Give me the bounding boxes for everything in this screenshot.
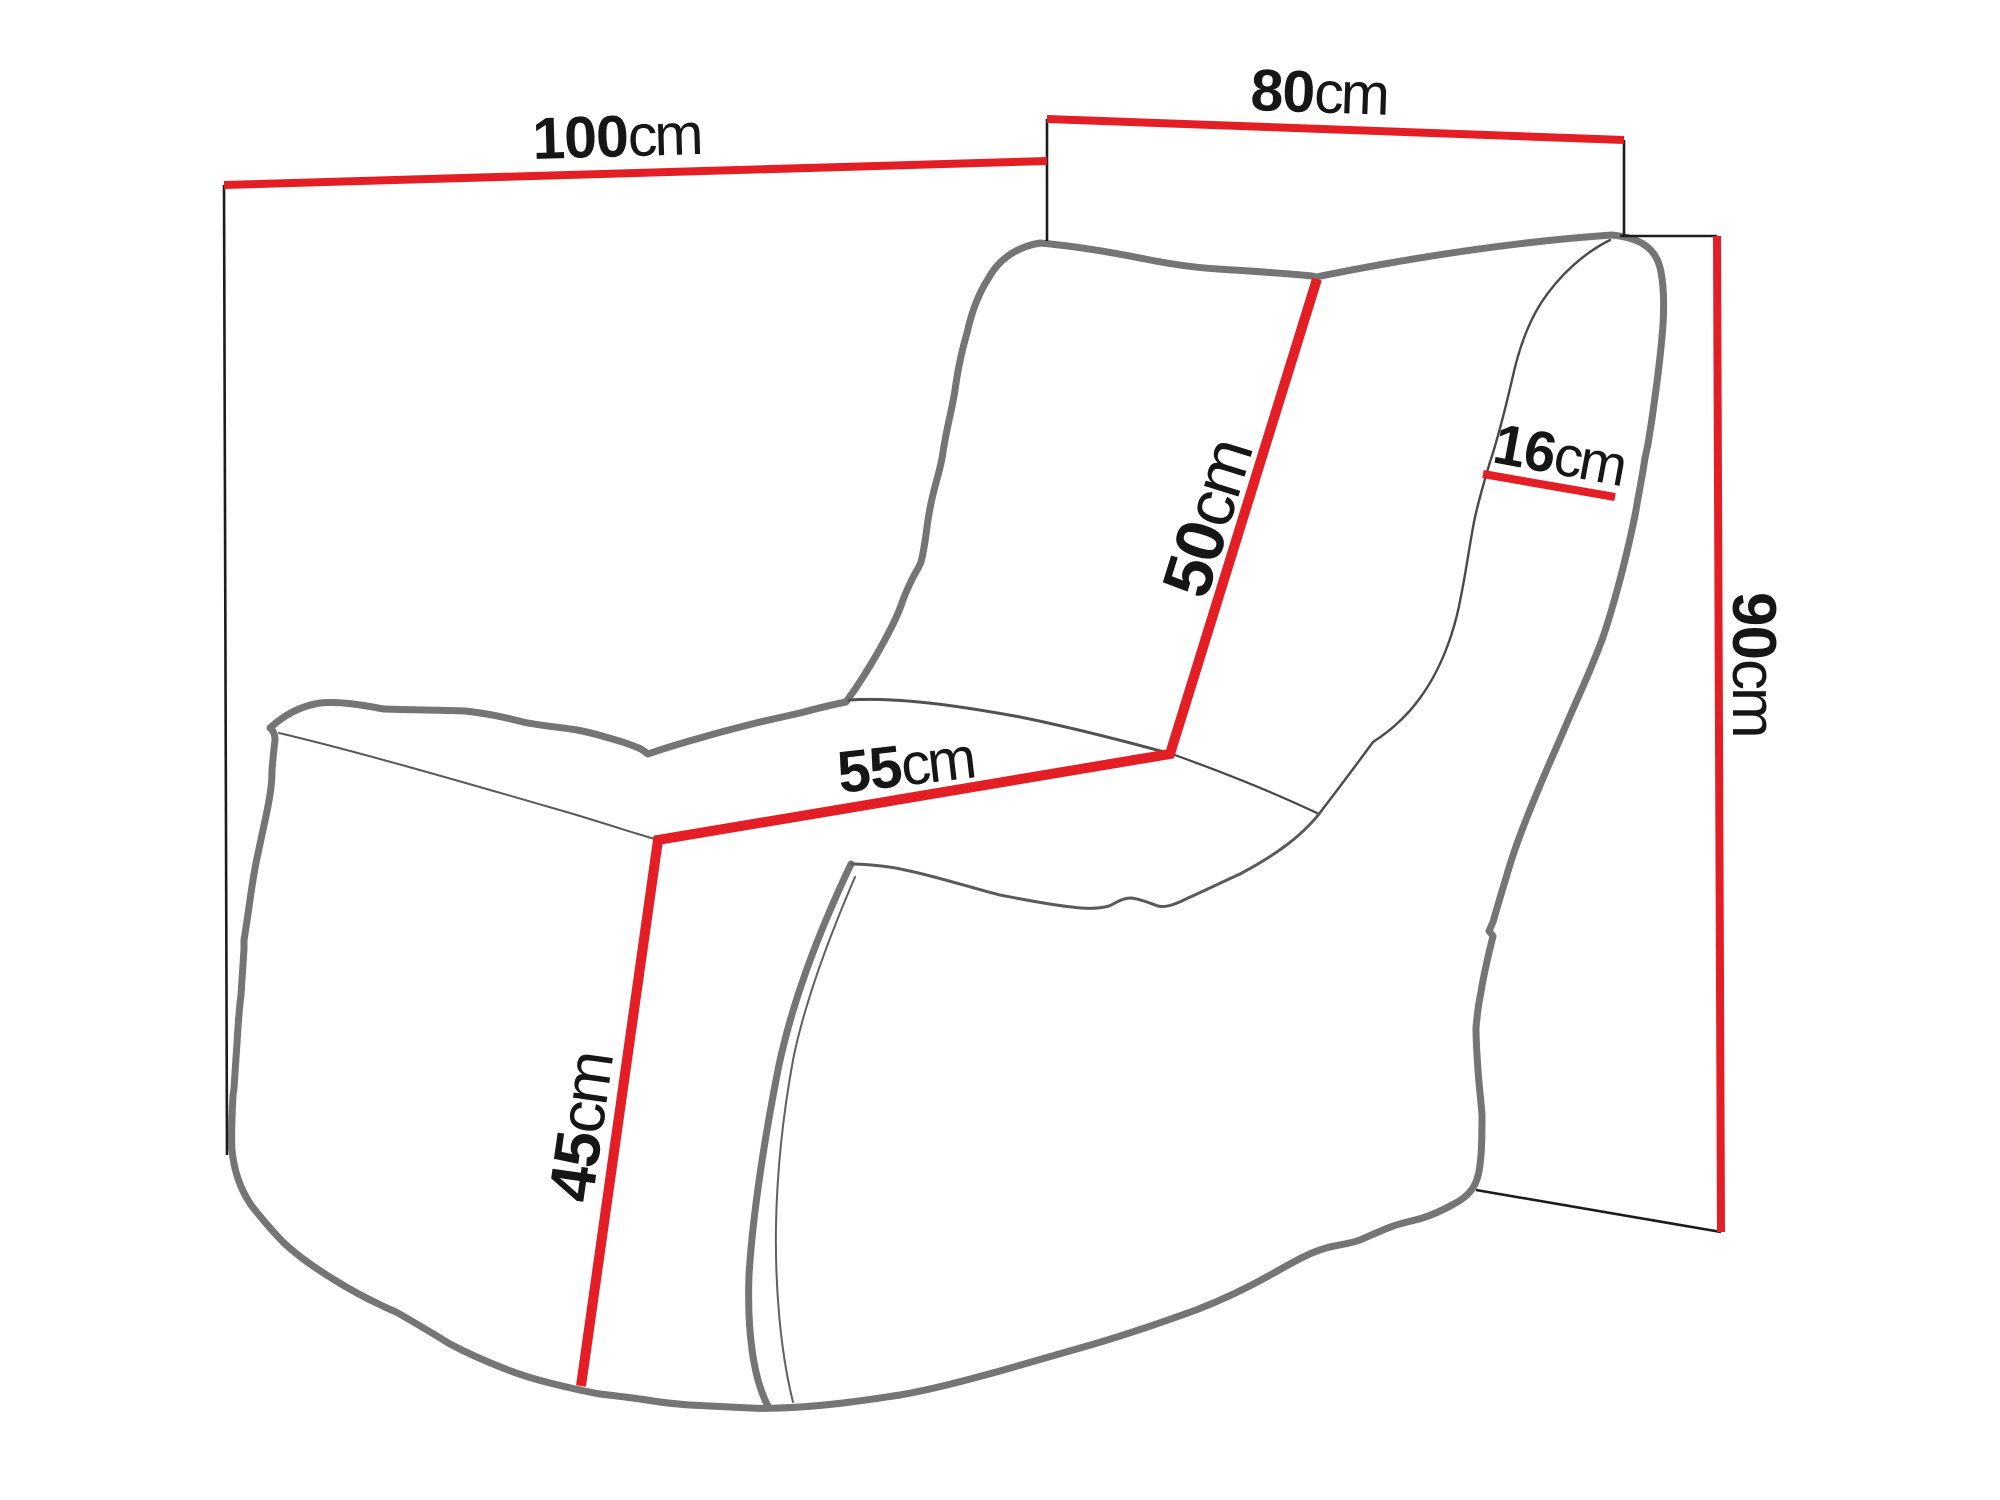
svg-text:80cm: 80cm [1250,57,1389,128]
svg-text:90cm: 90cm [1719,592,1788,736]
svg-text:100cm: 100cm [531,101,701,172]
